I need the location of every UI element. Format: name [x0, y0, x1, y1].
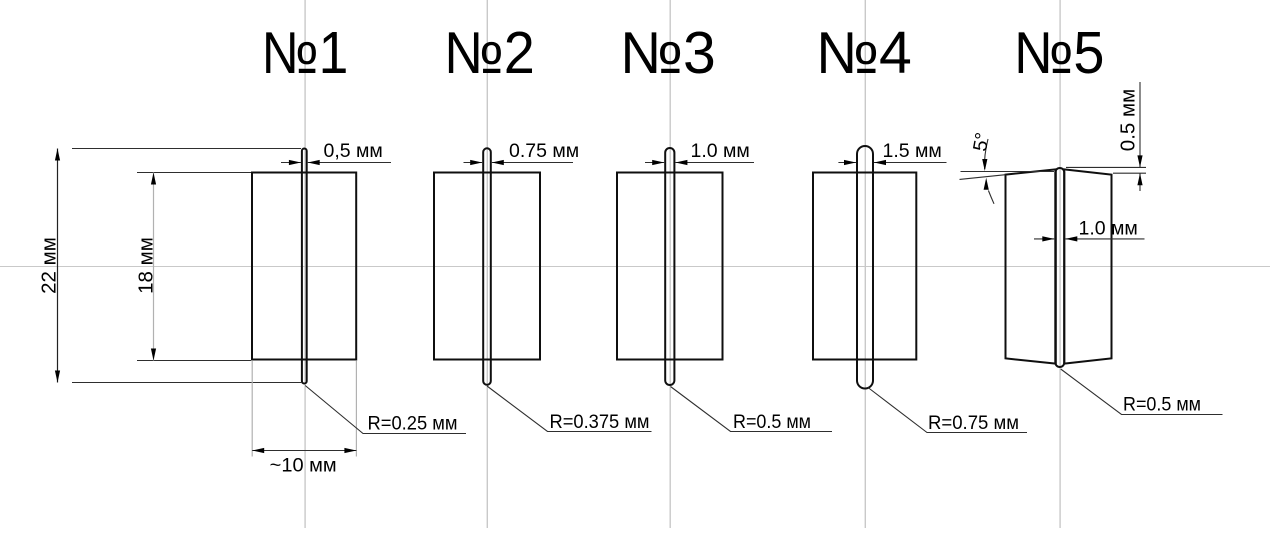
svg-text:1.0 мм: 1.0 мм [691, 140, 750, 162]
svg-text:0.75 мм: 0.75 мм [509, 140, 579, 162]
svg-text:№5: №5 [1014, 20, 1105, 86]
svg-text:0.5 мм: 0.5 мм [1117, 89, 1140, 151]
svg-text:~10 мм: ~10 мм [270, 455, 337, 477]
svg-text:R=0.75 мм: R=0.75 мм [928, 412, 1019, 434]
svg-text:5°: 5° [969, 131, 994, 153]
svg-text:0,5 мм: 0,5 мм [324, 140, 383, 162]
svg-text:№3: №3 [620, 20, 716, 86]
svg-text:№1: №1 [261, 20, 348, 86]
svg-text:22 мм: 22 мм [38, 237, 61, 294]
svg-text:R=0.375 мм: R=0.375 мм [550, 411, 650, 433]
svg-text:1.5 мм: 1.5 мм [883, 140, 942, 162]
svg-text:R=0.25 мм: R=0.25 мм [368, 413, 458, 435]
svg-text:1.0 мм: 1.0 мм [1079, 217, 1138, 239]
svg-text:18 мм: 18 мм [134, 237, 157, 294]
svg-text:№4: №4 [816, 20, 912, 86]
svg-text:R=0.5 мм: R=0.5 мм [1123, 394, 1201, 416]
svg-text:R=0.5 мм: R=0.5 мм [733, 411, 811, 433]
svg-text:№2: №2 [444, 20, 535, 86]
